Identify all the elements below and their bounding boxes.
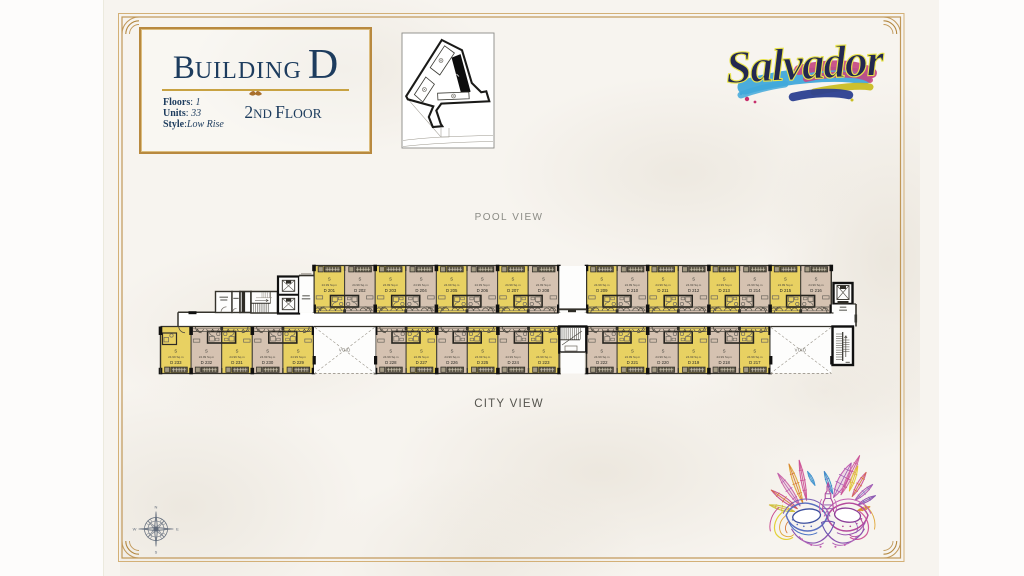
- svg-text:S: S: [631, 349, 634, 354]
- svg-text:S: S: [753, 277, 756, 282]
- svg-text:24.99 Sq.m: 24.99 Sq.m: [505, 283, 521, 287]
- svg-text:D 208: D 208: [538, 288, 550, 293]
- svg-text:D 224: D 224: [507, 360, 519, 365]
- svg-text:24.99 Sq.m: 24.99 Sq.m: [444, 355, 460, 359]
- svg-text:D 218: D 218: [718, 360, 730, 365]
- svg-text:D 232: D 232: [201, 360, 213, 365]
- svg-text:24.99 Sq.m: 24.99 Sq.m: [536, 283, 552, 287]
- svg-text:D 227: D 227: [416, 360, 428, 365]
- svg-text:24.99 Sq.m: 24.99 Sq.m: [536, 355, 552, 359]
- svg-text:S: S: [662, 349, 665, 354]
- svg-text:24.99 Sq.m: 24.99 Sq.m: [352, 283, 368, 287]
- svg-text:S: S: [542, 349, 545, 354]
- svg-text:24.99 Sq.m: 24.99 Sq.m: [291, 355, 307, 359]
- svg-text:W: W: [133, 527, 137, 532]
- svg-text:D 217: D 217: [749, 360, 761, 365]
- svg-text:S: S: [450, 277, 453, 282]
- svg-text:D 206: D 206: [477, 288, 489, 293]
- svg-text:D 211: D 211: [657, 288, 669, 293]
- svg-text:VOID: VOID: [339, 348, 351, 353]
- svg-text:D 213: D 213: [718, 288, 730, 293]
- svg-text:S: S: [155, 550, 158, 555]
- svg-text:S: S: [481, 277, 484, 282]
- svg-text:24.99 Sq.m: 24.99 Sq.m: [747, 355, 763, 359]
- svg-text:S: S: [512, 349, 515, 354]
- svg-text:D 207: D 207: [507, 288, 519, 293]
- svg-text:S: S: [512, 277, 515, 282]
- svg-text:S: S: [723, 349, 726, 354]
- svg-text:S: S: [662, 277, 665, 282]
- svg-text:D 231: D 231: [231, 360, 243, 365]
- svg-text:24.99 Sq.m: 24.99 Sq.m: [594, 355, 610, 359]
- svg-text:24.99 Sq.m: 24.99 Sq.m: [322, 283, 338, 287]
- svg-text:24.99 Sq.m: 24.99 Sq.m: [413, 283, 429, 287]
- svg-text:D 219: D 219: [688, 360, 700, 365]
- svg-text:D 216: D 216: [810, 288, 822, 293]
- svg-text:24.99 Sq.m: 24.99 Sq.m: [229, 355, 245, 359]
- svg-text:S: S: [481, 349, 484, 354]
- svg-text:24.99 Sq.m: 24.99 Sq.m: [168, 355, 184, 359]
- svg-text:S: S: [723, 277, 726, 282]
- svg-text:24.99 Sq.m: 24.99 Sq.m: [717, 283, 733, 287]
- svg-text:D 229: D 229: [292, 360, 304, 365]
- svg-text:D 230: D 230: [262, 360, 274, 365]
- svg-text:S: S: [692, 349, 695, 354]
- svg-text:D 225: D 225: [477, 360, 489, 365]
- svg-text:D 233: D 233: [170, 360, 182, 365]
- svg-text:S: S: [631, 277, 634, 282]
- svg-text:S: S: [692, 277, 695, 282]
- svg-text:S: S: [359, 277, 362, 282]
- svg-text:S: S: [205, 349, 208, 354]
- svg-text:24.99 Sq.m: 24.99 Sq.m: [594, 283, 610, 287]
- svg-text:24.99 Sq.m: 24.99 Sq.m: [475, 355, 491, 359]
- svg-text:S: S: [174, 349, 177, 354]
- svg-text:24.99 Sq.m: 24.99 Sq.m: [414, 355, 430, 359]
- svg-text:S: S: [600, 349, 603, 354]
- svg-text:24.99 Sq.m: 24.99 Sq.m: [625, 283, 641, 287]
- svg-text:24.99 Sq.m: 24.99 Sq.m: [686, 355, 702, 359]
- svg-text:S: S: [389, 277, 392, 282]
- svg-text:24.99 Sq.m: 24.99 Sq.m: [475, 283, 491, 287]
- svg-text:Salvador: Salvador: [725, 34, 887, 93]
- svg-text:D 228: D 228: [385, 360, 397, 365]
- svg-text:N: N: [155, 505, 158, 510]
- svg-text:S: S: [542, 277, 545, 282]
- svg-text:D 203: D 203: [385, 288, 397, 293]
- svg-text:E: E: [176, 527, 179, 532]
- svg-text:S: S: [600, 277, 603, 282]
- svg-text:S: S: [753, 349, 756, 354]
- svg-text:24.99 Sq.m: 24.99 Sq.m: [655, 355, 671, 359]
- svg-text:S: S: [297, 349, 300, 354]
- svg-text:D 202: D 202: [354, 288, 366, 293]
- svg-text:S: S: [266, 349, 269, 354]
- svg-text:24.99 Sq.m: 24.99 Sq.m: [625, 355, 641, 359]
- svg-text:D 210: D 210: [627, 288, 639, 293]
- svg-text:D 201: D 201: [324, 288, 336, 293]
- svg-text:24.99 Sq.m: 24.99 Sq.m: [383, 283, 399, 287]
- svg-text:D 223: D 223: [538, 360, 550, 365]
- svg-text:D 226: D 226: [446, 360, 458, 365]
- svg-text:D 205: D 205: [446, 288, 458, 293]
- svg-text:D 209: D 209: [596, 288, 608, 293]
- svg-text:24.99 Sq.m: 24.99 Sq.m: [655, 283, 671, 287]
- svg-text:24.99 Sq.m: 24.99 Sq.m: [808, 283, 824, 287]
- svg-text:24.99 Sq.m: 24.99 Sq.m: [717, 355, 733, 359]
- svg-text:24.99 Sq.m: 24.99 Sq.m: [506, 355, 522, 359]
- svg-text:S: S: [451, 349, 454, 354]
- svg-text:24.99 Sq.m: 24.99 Sq.m: [686, 283, 702, 287]
- svg-text:D 212: D 212: [688, 288, 700, 293]
- svg-text:24.99 Sq.m: 24.99 Sq.m: [199, 355, 215, 359]
- svg-text:S: S: [784, 277, 787, 282]
- svg-text:D 221: D 221: [627, 360, 639, 365]
- svg-text:S: S: [328, 277, 331, 282]
- svg-text:S: S: [815, 277, 818, 282]
- svg-text:24.99 Sq.m: 24.99 Sq.m: [778, 283, 794, 287]
- svg-text:D 204: D 204: [415, 288, 427, 293]
- svg-text:D 214: D 214: [749, 288, 761, 293]
- svg-text:S: S: [236, 349, 239, 354]
- svg-text:S: S: [420, 349, 423, 354]
- svg-text:24.99 Sq.m: 24.99 Sq.m: [260, 355, 276, 359]
- svg-text:24.99 Sq.m: 24.99 Sq.m: [444, 283, 460, 287]
- svg-text:D 220: D 220: [657, 360, 669, 365]
- svg-text:S: S: [389, 349, 392, 354]
- svg-text:S: S: [420, 277, 423, 282]
- svg-text:D 215: D 215: [780, 288, 792, 293]
- svg-text:D 222: D 222: [596, 360, 608, 365]
- svg-text:VOID: VOID: [795, 348, 807, 353]
- svg-text:24.99 Sq.m: 24.99 Sq.m: [747, 283, 763, 287]
- svg-text:24.99 Sq.m: 24.99 Sq.m: [383, 355, 399, 359]
